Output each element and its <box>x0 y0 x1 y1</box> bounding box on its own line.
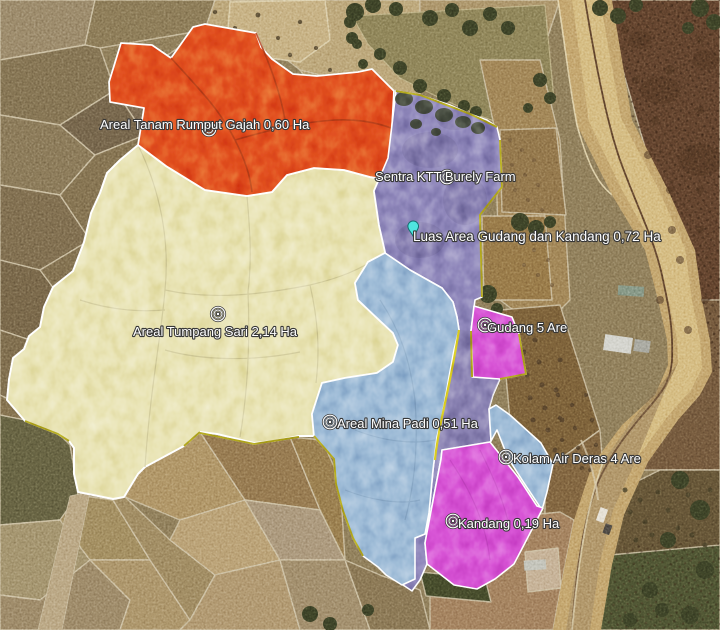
svg-text:Kolam Air Deras 4 Are: Kolam Air Deras 4 Are <box>513 451 641 466</box>
svg-text:Kandang 0,19 Ha: Kandang 0,19 Ha <box>458 516 560 531</box>
svg-text:Areal Tanam Rumput Gajah 0,60: Areal Tanam Rumput Gajah 0,60 Ha <box>100 117 310 132</box>
svg-text:Sentra KTT Burely Farm: Sentra KTT Burely Farm <box>375 169 516 184</box>
svg-text:Gudang 5 Are: Gudang 5 Are <box>487 320 567 335</box>
svg-text:Luas Area Gudang dan Kandang 0: Luas Area Gudang dan Kandang 0,72 Ha <box>413 229 661 244</box>
svg-text:Areal Tumpang Sari 2,14 Ha: Areal Tumpang Sari 2,14 Ha <box>133 324 298 339</box>
svg-text:Areal Mina Padi 0,51 Ha: Areal Mina Padi 0,51 Ha <box>337 416 479 431</box>
